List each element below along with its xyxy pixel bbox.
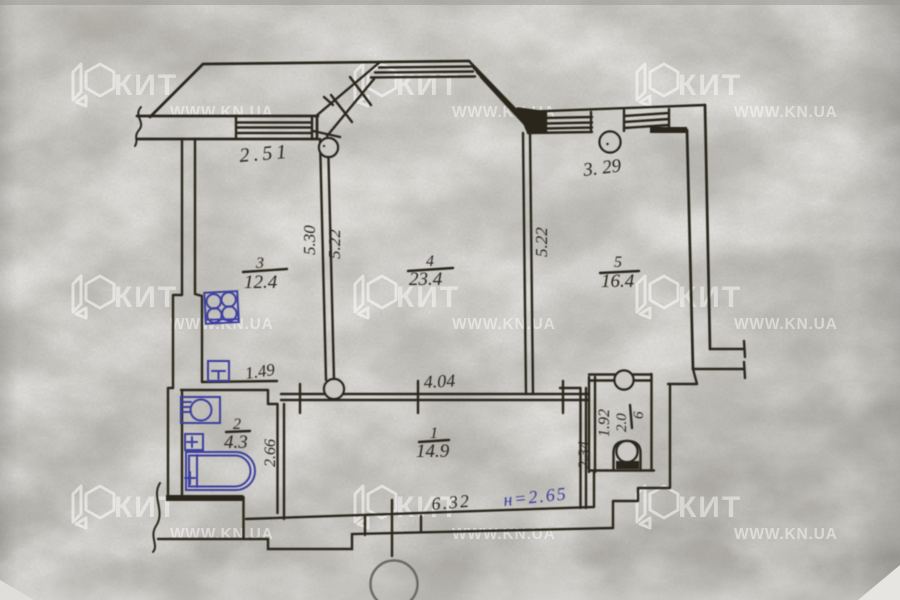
svg-text:14.9: 14.9 — [416, 441, 450, 462]
svg-text:5.30: 5.30 — [300, 225, 319, 255]
svg-text:WWW.KN.UA: WWW.KN.UA — [170, 104, 274, 121]
svg-text:16.4: 16.4 — [601, 271, 635, 292]
svg-text:6.32: 6.32 — [431, 491, 472, 514]
svg-text:5: 5 — [614, 254, 622, 271]
svg-text:2.0: 2.0 — [614, 413, 630, 432]
svg-text:23.4: 23.4 — [409, 269, 443, 290]
svg-text:12.4: 12.4 — [244, 272, 278, 293]
svg-text:1.92: 1.92 — [596, 409, 613, 437]
svg-text:2.51: 2.51 — [239, 141, 292, 167]
svg-text:2.66: 2.66 — [262, 439, 279, 467]
svg-text:6: 6 — [631, 411, 647, 419]
svg-text:1: 1 — [430, 425, 438, 442]
svg-text:2.34: 2.34 — [576, 441, 593, 469]
svg-text:4.04: 4.04 — [423, 370, 456, 392]
svg-text:5.22: 5.22 — [325, 229, 344, 259]
svg-text:4.3: 4.3 — [224, 432, 248, 453]
svg-text:3: 3 — [255, 255, 264, 272]
svg-text:4: 4 — [426, 253, 434, 270]
svg-text:5.22: 5.22 — [532, 227, 551, 257]
